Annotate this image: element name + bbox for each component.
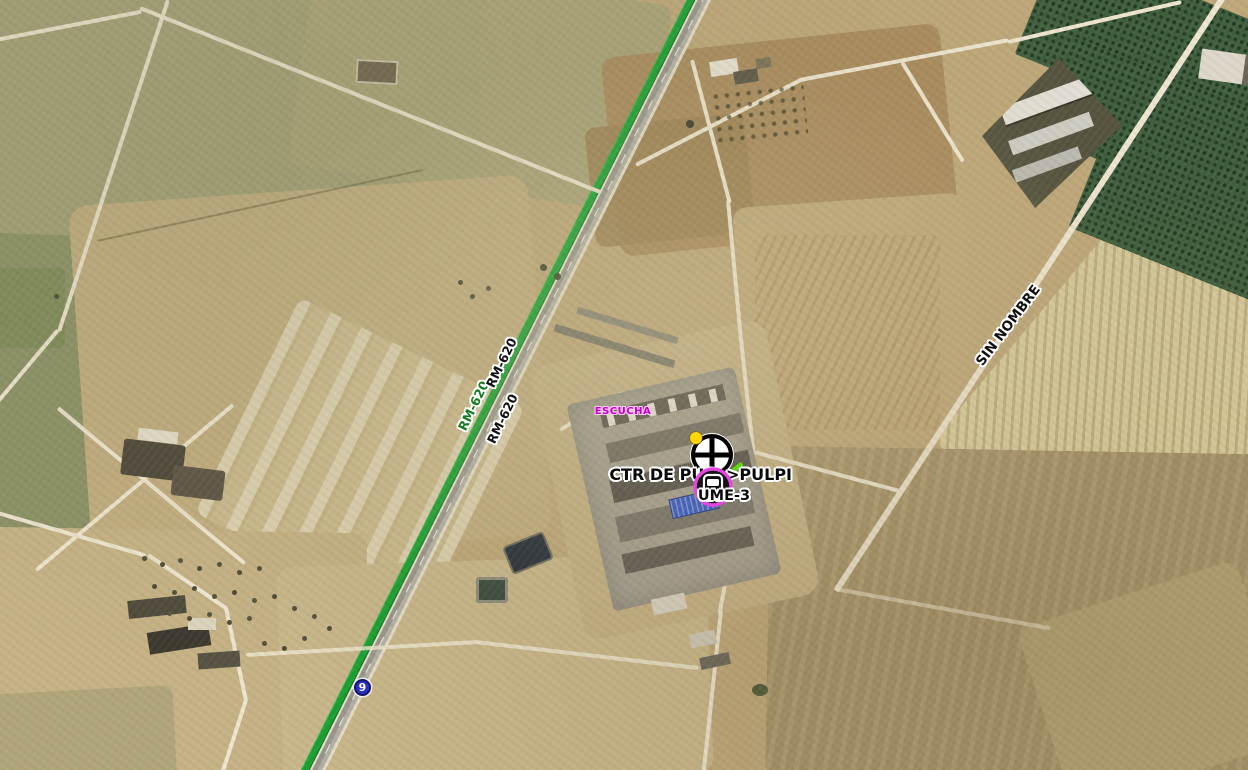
tree	[54, 294, 59, 299]
farm-building	[188, 618, 216, 630]
tree-cluster	[142, 556, 147, 561]
satellite-map[interactable]: RM-620 RM-620 RM-620 SIN NOMBRE ESCUCHA …	[0, 0, 1248, 770]
farm-building	[170, 465, 225, 501]
bush	[752, 684, 768, 696]
place-label-escucha: ESCUCHA	[595, 407, 651, 417]
field-patch	[0, 685, 177, 770]
orchard-grid	[712, 83, 809, 144]
highlight-dot	[690, 432, 702, 444]
route-label-right: >PULPI	[726, 467, 792, 483]
unit-label-ume3: UME-3	[698, 489, 750, 504]
farm-building	[197, 651, 240, 670]
km-post[interactable]: 9	[354, 679, 371, 696]
tree	[458, 280, 463, 285]
plowed-rows-patch	[755, 235, 940, 430]
small-pond	[686, 120, 694, 128]
pond	[476, 577, 508, 603]
farm-building	[355, 59, 398, 85]
tree	[540, 264, 547, 271]
